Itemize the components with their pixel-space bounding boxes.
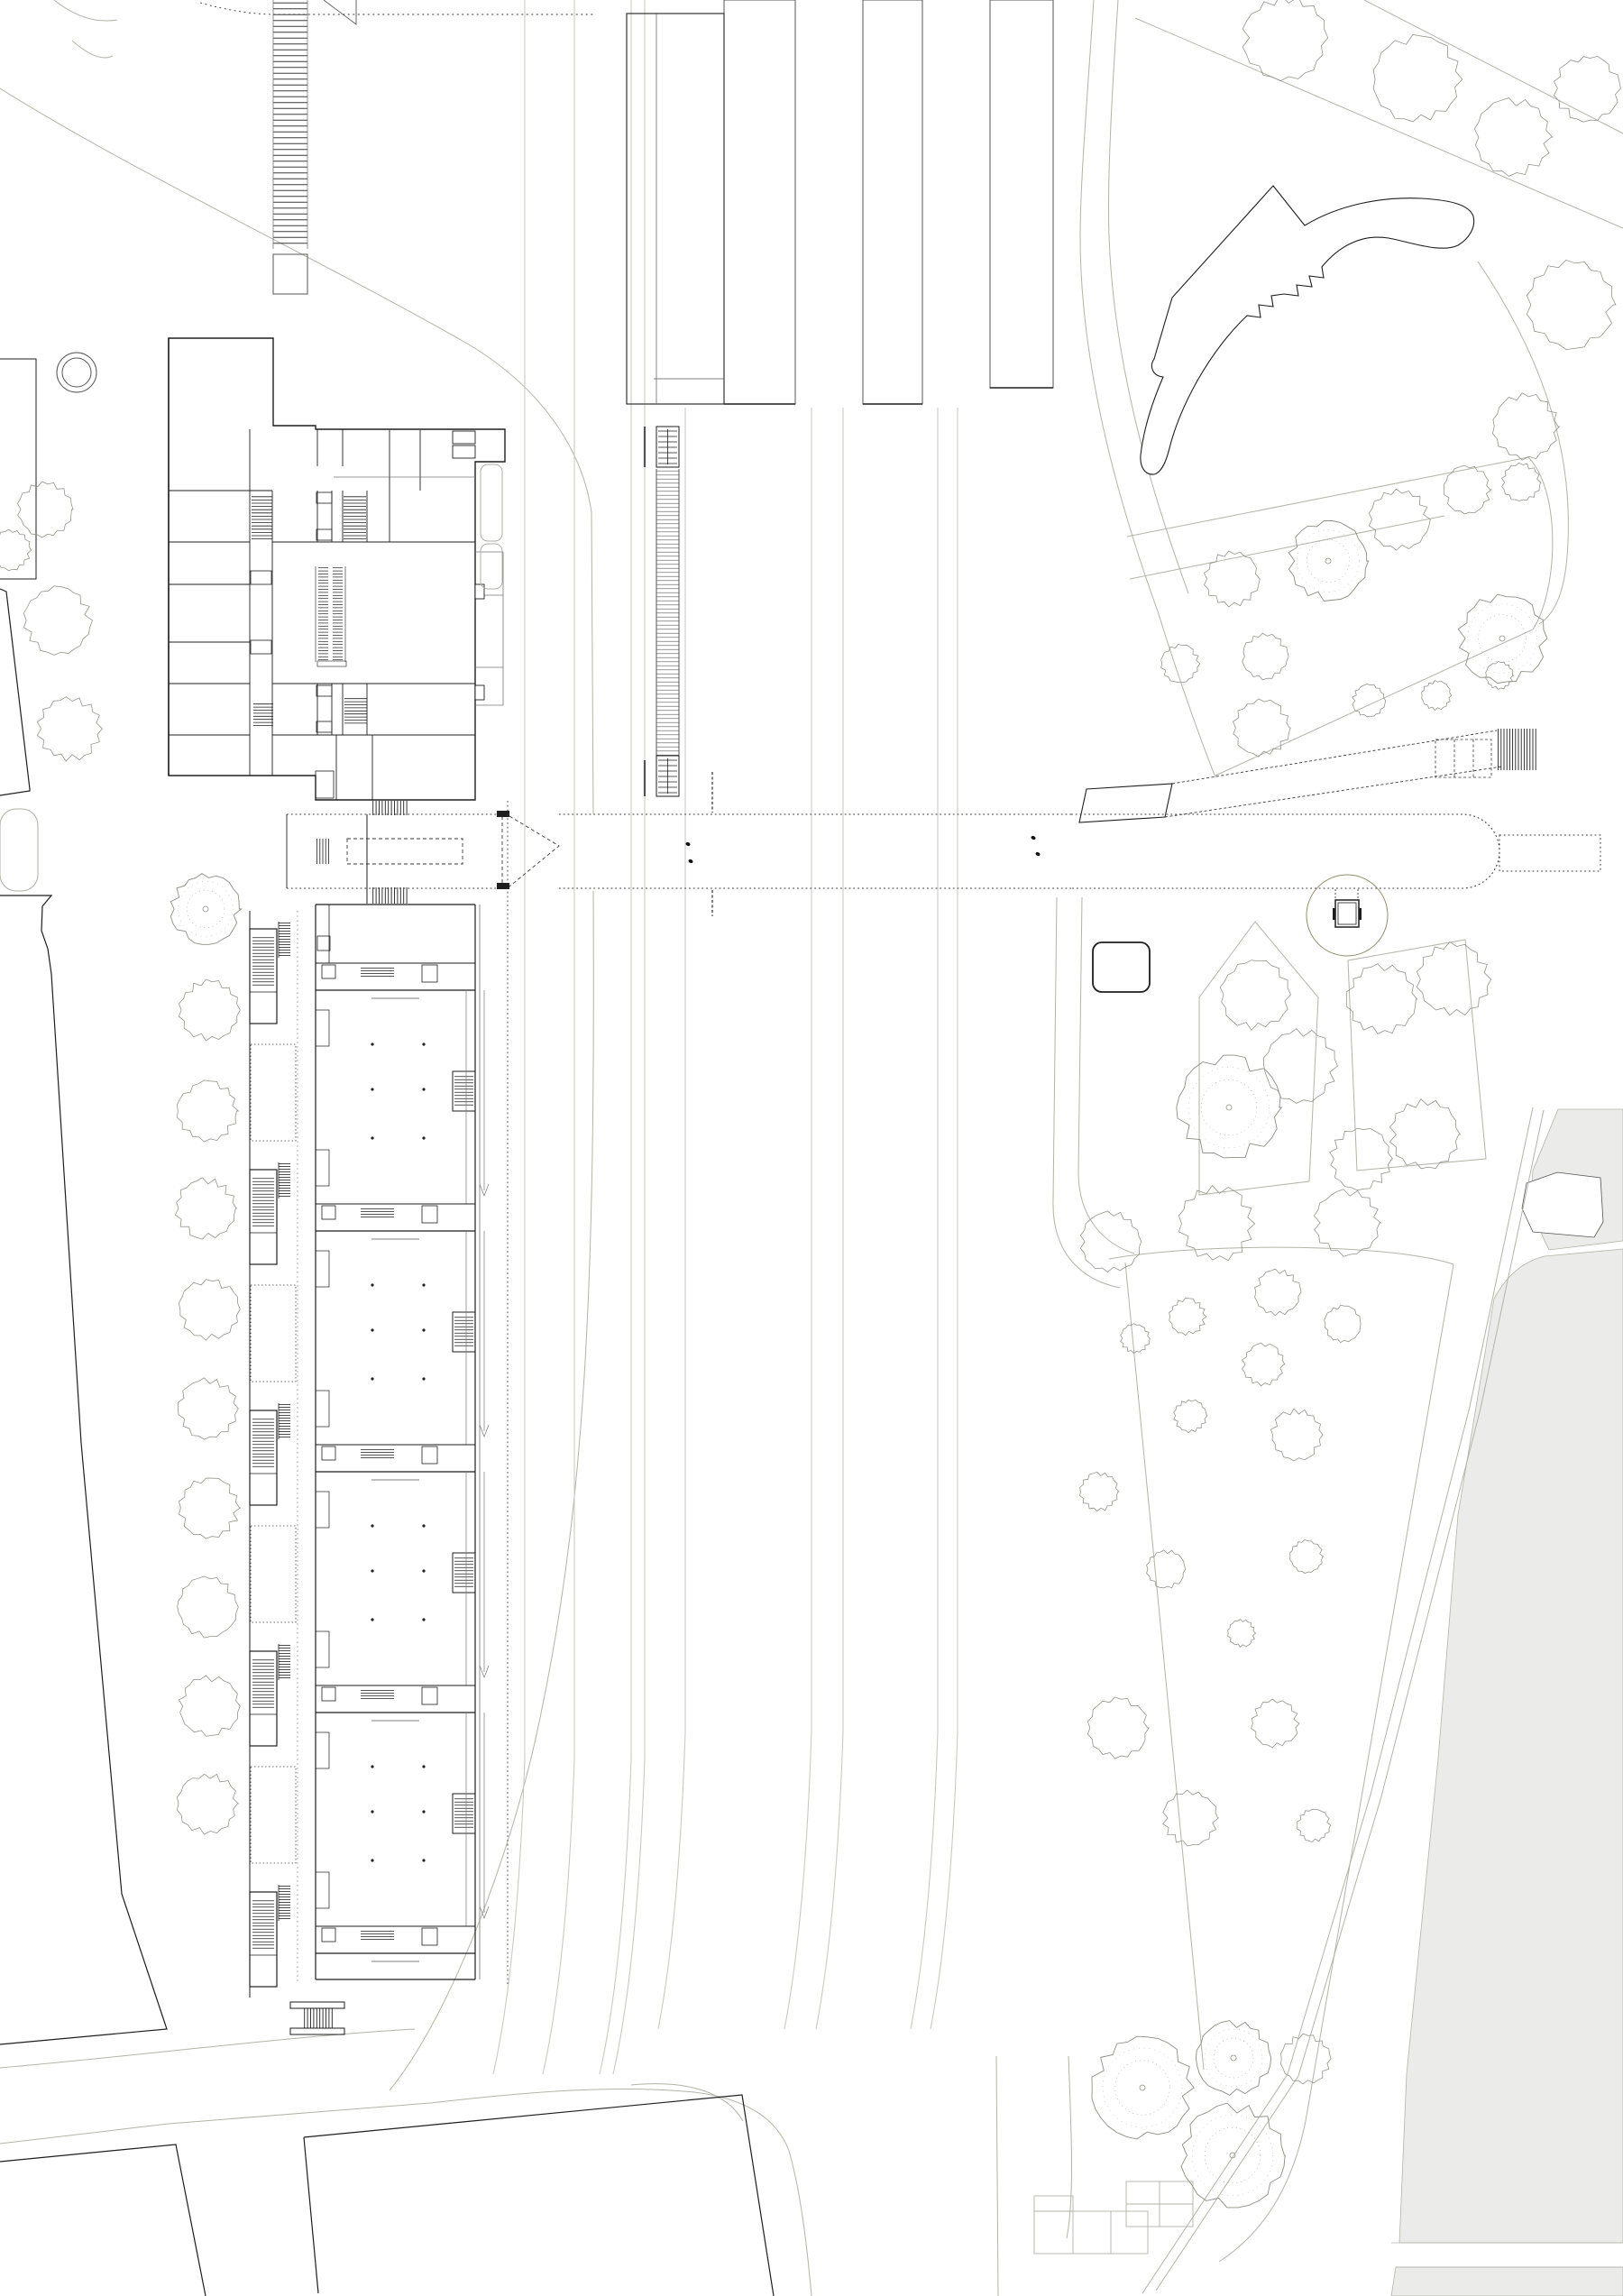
- layer-underground-passage: [287, 729, 1600, 1984]
- layer-upper-building-complex: [169, 338, 505, 904]
- layer-trees: [0, 0, 1620, 2208]
- site-plan-page: [0, 0, 1623, 2296]
- layer-gray-areas: [1391, 1109, 1623, 2296]
- layer-small-objects: [57, 353, 1388, 2254]
- layer-parcels-buildings: [0, 186, 1474, 2296]
- layer-lower-building-row: [250, 905, 489, 2034]
- layer-railway-tracks: [493, 0, 958, 2074]
- layer-platforms-station: [200, 0, 1053, 796]
- site-plan-drawing: [0, 0, 1623, 2296]
